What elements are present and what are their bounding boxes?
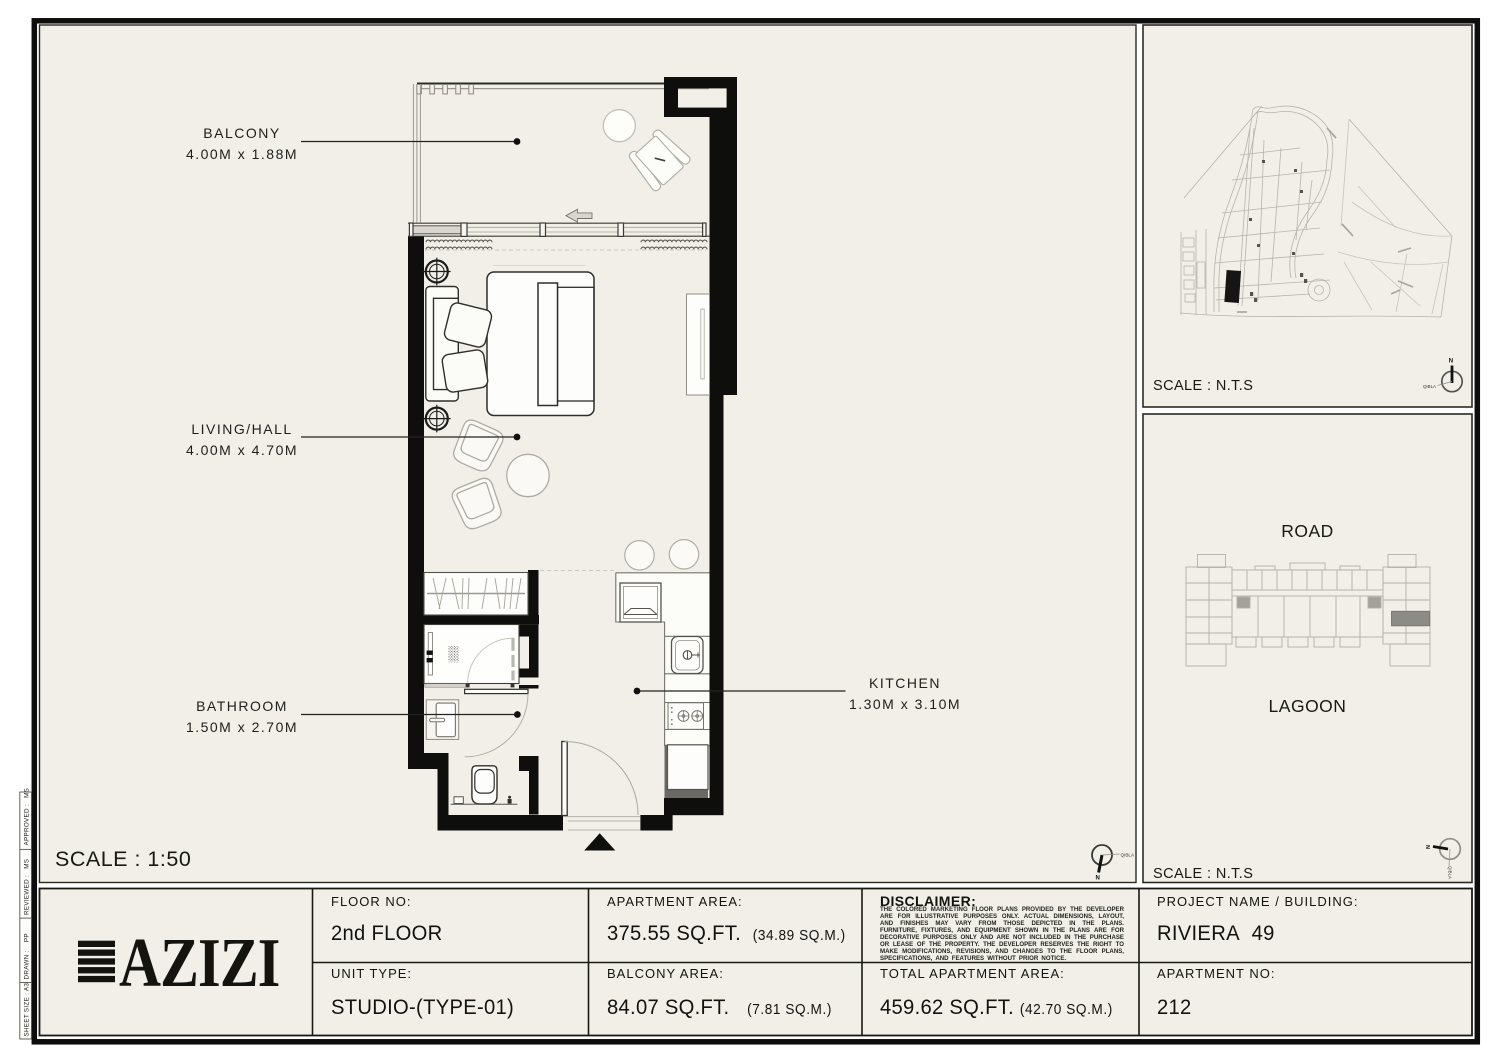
svg-text:QIBLA: QIBLA [1121,853,1135,858]
svg-text:SHEET SIZE : A3: SHEET SIZE : A3 [24,983,31,1037]
svg-text:N: N [1096,876,1100,882]
svg-text:QIBLA: QIBLA [1423,384,1436,389]
svg-text:QIBLA: QIBLA [1448,866,1453,879]
svg-text:APPROVED : MS: APPROVED : MS [24,788,31,846]
svg-text:DRAWN : PP: DRAWN : PP [24,933,31,979]
svg-text:N: N [1449,359,1453,365]
svg-text:N: N [1424,845,1430,849]
svg-text:REVIEWED : MS: REVIEWED : MS [24,859,31,915]
